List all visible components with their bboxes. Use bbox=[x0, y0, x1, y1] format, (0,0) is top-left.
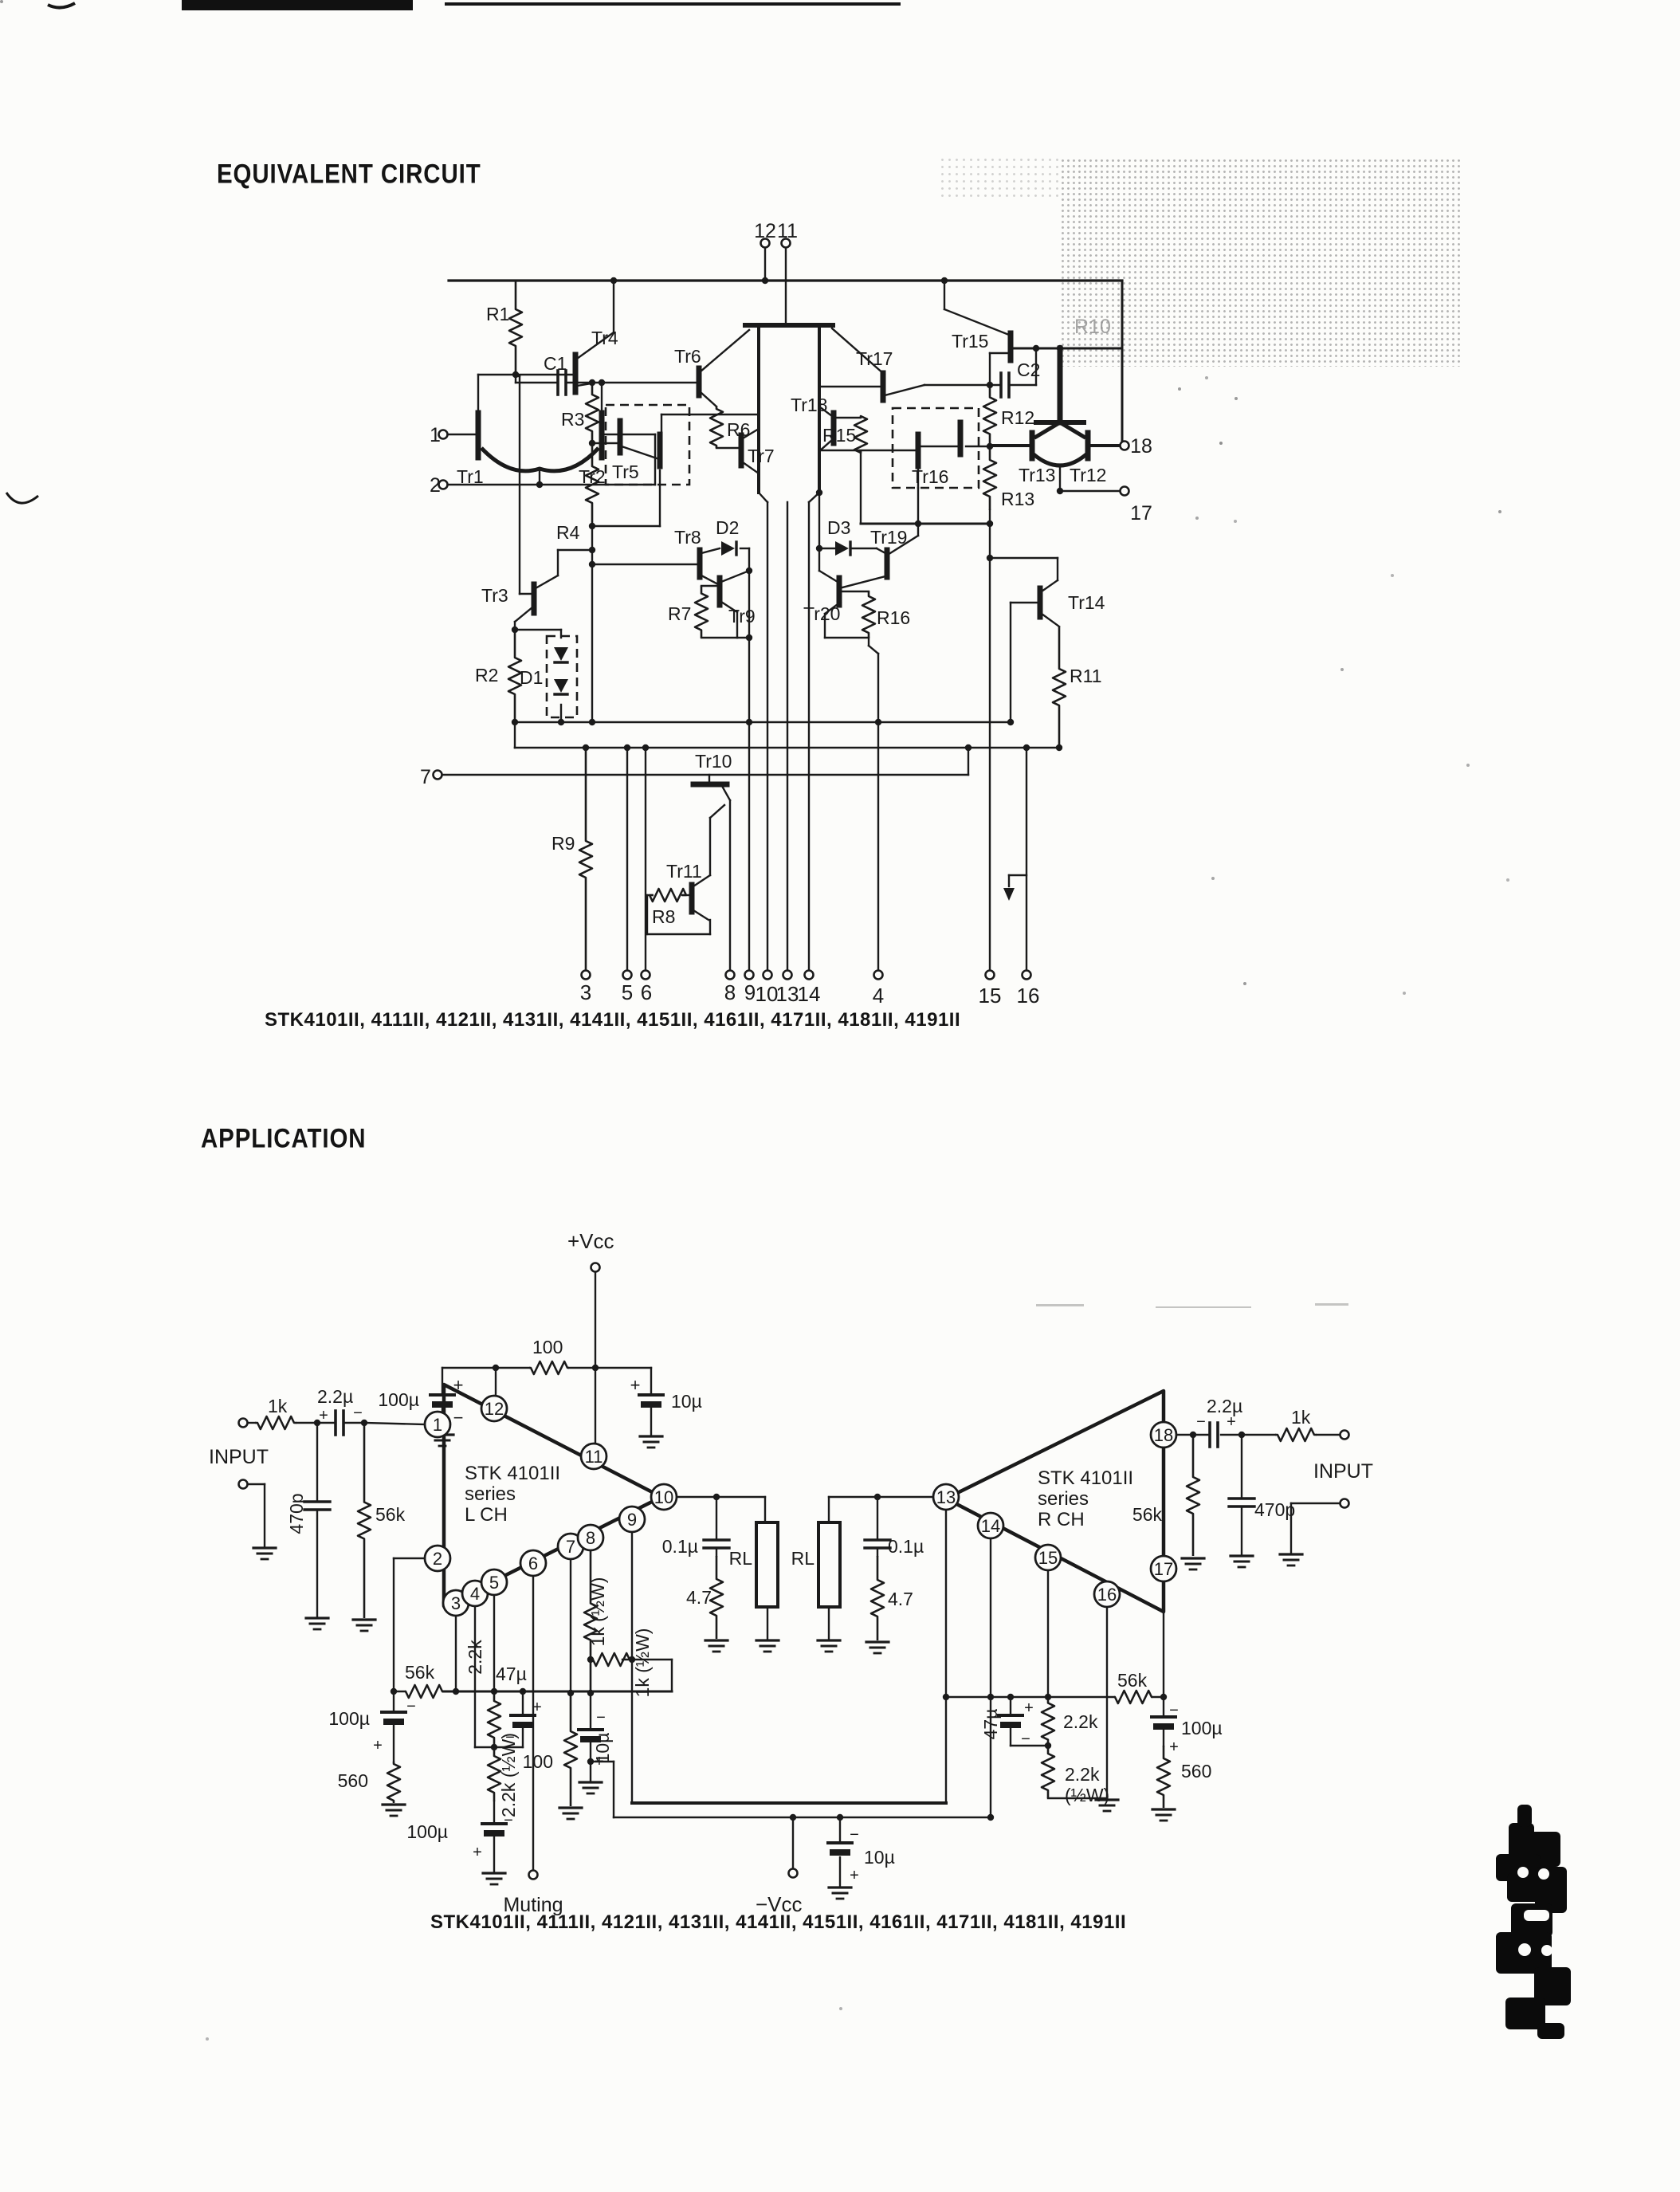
junction-dot bbox=[987, 382, 993, 388]
tr10-label: Tr10 bbox=[695, 751, 732, 772]
terminal bbox=[789, 1869, 798, 1878]
pin-number-4: 4 bbox=[470, 1584, 480, 1604]
tr7-label: Tr7 bbox=[748, 446, 775, 466]
junction-dot bbox=[1033, 345, 1039, 352]
c-470p-left-label: 470p bbox=[286, 1493, 307, 1534]
plus: + bbox=[630, 1375, 641, 1395]
tr15-label: Tr15 bbox=[952, 331, 988, 352]
junction-dot bbox=[1057, 345, 1063, 352]
junction-dot bbox=[987, 555, 993, 561]
tr20-label: Tr20 bbox=[803, 603, 840, 624]
minus: − bbox=[596, 1709, 606, 1726]
ink-stamp-hole bbox=[1538, 1868, 1549, 1880]
wire bbox=[885, 385, 924, 395]
junction-dot bbox=[1007, 719, 1014, 725]
minus: − bbox=[406, 1698, 416, 1715]
pin-number-8: 8 bbox=[586, 1528, 595, 1548]
resistor bbox=[358, 1423, 371, 1618]
wire bbox=[364, 1423, 425, 1424]
plus: + bbox=[850, 1867, 859, 1884]
amp-right-text: series bbox=[1038, 1488, 1089, 1510]
pin-number-11: 11 bbox=[585, 1447, 603, 1467]
junction-dot bbox=[512, 719, 518, 725]
pin-7-label: 7 bbox=[420, 766, 431, 788]
junction-dot bbox=[790, 1814, 796, 1821]
wire bbox=[842, 575, 889, 587]
amp-right-text: R CH bbox=[1038, 1509, 1085, 1530]
minus: − bbox=[353, 1404, 363, 1422]
input-right-label: INPUT bbox=[1313, 1460, 1373, 1483]
junction-dot bbox=[816, 545, 822, 552]
junction-dot bbox=[746, 568, 752, 574]
junction-dot bbox=[915, 521, 921, 527]
tr19-label: Tr19 bbox=[870, 527, 907, 548]
plus: + bbox=[319, 1407, 328, 1424]
r-560-left-label: 560 bbox=[338, 1770, 368, 1791]
junction-dot bbox=[589, 379, 595, 386]
amp-right-text: STK 4101II bbox=[1038, 1467, 1133, 1489]
ink-stamp-shape bbox=[1517, 1805, 1532, 1827]
r16-label: R16 bbox=[877, 607, 910, 628]
resistor bbox=[710, 1556, 723, 1639]
r8-label: R8 bbox=[652, 906, 675, 927]
junction-dot bbox=[987, 521, 993, 527]
minus: − bbox=[1021, 1730, 1030, 1748]
diode bbox=[554, 647, 568, 661]
schematic-canvas: 123456789101112131415161718 1211R1Tr4C1R… bbox=[0, 0, 1680, 2192]
terminal bbox=[434, 771, 442, 780]
r-22k-bl-label: 2.2k bbox=[465, 1640, 485, 1675]
rl-right-label: RL bbox=[791, 1548, 815, 1569]
pin-9-label: 9 bbox=[744, 980, 756, 1004]
pin-number-12: 12 bbox=[485, 1399, 504, 1419]
r15-label: R15 bbox=[822, 425, 856, 446]
terminal bbox=[239, 1480, 248, 1489]
pin-number-15: 15 bbox=[1038, 1548, 1058, 1568]
minus: − bbox=[504, 1812, 513, 1829]
r-100-bl-label: 100 bbox=[523, 1751, 553, 1772]
pin-17-label: 17 bbox=[1130, 502, 1152, 524]
junction-dot bbox=[589, 440, 595, 446]
arrow-mark bbox=[1003, 888, 1015, 901]
tr5-label: Tr5 bbox=[612, 462, 639, 482]
wire bbox=[759, 493, 767, 502]
junction-dot bbox=[512, 371, 519, 378]
junction-dot bbox=[816, 489, 822, 496]
scan-marks bbox=[6, 3, 75, 503]
junction-dot bbox=[491, 1688, 497, 1695]
pin-11-label: 11 bbox=[777, 220, 798, 242]
pin-6-label: 6 bbox=[641, 980, 652, 1004]
capacitor-plate bbox=[1000, 1722, 1021, 1728]
tr2-label: Tr2 bbox=[579, 466, 606, 487]
terminal bbox=[745, 971, 754, 980]
speaker-load bbox=[756, 1522, 778, 1607]
pin-number-14: 14 bbox=[981, 1516, 1000, 1536]
minus: − bbox=[1169, 1702, 1179, 1719]
junction-dot bbox=[987, 1694, 994, 1700]
pin-number-1: 1 bbox=[433, 1415, 442, 1435]
resistor bbox=[862, 591, 875, 638]
resistor bbox=[695, 586, 708, 638]
plus: + bbox=[473, 1844, 482, 1861]
c-100u-rout-label: 100µ bbox=[1181, 1718, 1223, 1738]
terminal bbox=[1023, 971, 1031, 980]
c-10u-mid-label: 10µ bbox=[864, 1847, 895, 1868]
resistor bbox=[405, 1685, 443, 1698]
pin-number-16: 16 bbox=[1097, 1585, 1117, 1605]
plus: + bbox=[595, 1753, 604, 1770]
r-100-top-label: 100 bbox=[532, 1337, 563, 1357]
junction-dot bbox=[520, 1688, 526, 1695]
tr14-label: Tr14 bbox=[1068, 592, 1105, 613]
plus: + bbox=[373, 1737, 383, 1754]
junction-dot bbox=[837, 1814, 843, 1821]
r-22k-halfw-br-label: 2.2k bbox=[1065, 1764, 1100, 1785]
junction-dot bbox=[875, 719, 881, 725]
resistor bbox=[1157, 1746, 1170, 1808]
ink-stamp-shape bbox=[1537, 2023, 1564, 2039]
junction-dot bbox=[624, 744, 630, 751]
ink-stamp-hole bbox=[1517, 1867, 1529, 1878]
pin-15-label: 15 bbox=[979, 984, 1002, 1008]
muting-label: Muting bbox=[503, 1894, 563, 1916]
c-10u-topright-label: 10µ bbox=[671, 1391, 702, 1412]
capacitor-plate bbox=[432, 1401, 453, 1408]
junction-dot bbox=[1160, 1694, 1167, 1700]
application-circuit-diagram: 123456789101112131415161718 bbox=[239, 1263, 1349, 1899]
r-47-right-label: 4.7 bbox=[888, 1589, 913, 1609]
tr13-label: Tr13 bbox=[1019, 465, 1055, 485]
junction-dot bbox=[587, 1656, 594, 1663]
capacitor-plate bbox=[641, 1401, 661, 1408]
junction-dot bbox=[943, 1694, 949, 1700]
junction-dot bbox=[558, 719, 564, 725]
junction-dot bbox=[536, 481, 543, 488]
r-56k-left-in-label: 56k bbox=[375, 1504, 406, 1525]
terminal bbox=[529, 1871, 538, 1880]
pin-12-label: 12 bbox=[754, 220, 776, 242]
terminal bbox=[591, 1263, 600, 1272]
vcc-pos-label: +Vcc bbox=[567, 1229, 614, 1253]
junction-dot bbox=[1238, 1432, 1245, 1438]
c2-label: C2 bbox=[1017, 359, 1040, 380]
junction-dot bbox=[965, 744, 971, 751]
amp-left-text: L CH bbox=[465, 1504, 508, 1526]
capacitor-plate bbox=[383, 1719, 404, 1725]
pin-number-5: 5 bbox=[489, 1573, 499, 1593]
pin-number-6: 6 bbox=[528, 1554, 538, 1573]
pin-number-7: 7 bbox=[566, 1537, 575, 1557]
resistor bbox=[710, 407, 723, 448]
pin-13-label: 13 bbox=[776, 982, 799, 1006]
wire bbox=[723, 788, 730, 800]
rl-left-label: RL bbox=[729, 1548, 753, 1569]
r-1k-halfw-b-label: 1k (½W) bbox=[632, 1628, 653, 1698]
pin-number-10: 10 bbox=[654, 1487, 673, 1507]
terminal bbox=[986, 971, 995, 980]
c-470p-right-label: 470p bbox=[1254, 1499, 1295, 1520]
junction-dot bbox=[762, 277, 768, 284]
terminal bbox=[783, 971, 792, 980]
r-56k-br-label: 56k bbox=[1117, 1670, 1148, 1691]
d2-label: D2 bbox=[716, 517, 739, 538]
pin-number-18: 18 bbox=[1154, 1425, 1173, 1445]
junction-dot bbox=[874, 1494, 881, 1500]
input-left-label: INPUT bbox=[209, 1446, 269, 1468]
wire bbox=[701, 575, 718, 584]
r9-label: R9 bbox=[551, 833, 575, 854]
plus: + bbox=[1227, 1413, 1236, 1431]
tr18-label: Tr18 bbox=[791, 395, 827, 415]
r-22k-halfw-bl-label: 2.2k (½W) bbox=[498, 1733, 519, 1817]
tr9-label: Tr9 bbox=[728, 606, 756, 627]
tr8-label: Tr8 bbox=[674, 527, 701, 548]
wire bbox=[877, 548, 885, 553]
d1-label: D1 bbox=[520, 667, 543, 688]
wire bbox=[721, 571, 749, 582]
r-56k-bl-label: 56k bbox=[405, 1662, 435, 1683]
ink-stamp-hole bbox=[1511, 1974, 1530, 1983]
diode bbox=[835, 541, 849, 556]
junction-dot bbox=[491, 1744, 497, 1750]
terminal bbox=[642, 971, 650, 980]
c-01u-left-label: 0.1µ bbox=[662, 1536, 698, 1557]
capacitor-plate bbox=[512, 1722, 533, 1728]
junction-dot bbox=[589, 561, 595, 568]
r7-label: R7 bbox=[668, 603, 691, 624]
wire bbox=[710, 805, 724, 818]
pin-3-label: 3 bbox=[580, 980, 591, 1004]
resistor bbox=[586, 383, 599, 443]
pin-14-label: 14 bbox=[798, 982, 821, 1006]
r11-label: R11 bbox=[1070, 666, 1102, 686]
tr1-label: Tr1 bbox=[457, 466, 484, 487]
pin-10-label: 10 bbox=[756, 982, 779, 1006]
c-47u-bl-label: 47µ bbox=[496, 1664, 527, 1684]
junction-dot bbox=[713, 1494, 720, 1500]
junction-dot bbox=[1056, 744, 1062, 751]
r4-label: R4 bbox=[556, 522, 580, 543]
terminal bbox=[874, 971, 883, 980]
r3-label: R3 bbox=[561, 409, 584, 430]
junction-dot bbox=[1045, 1694, 1051, 1700]
pin-4-label: 4 bbox=[873, 984, 884, 1008]
capacitor-plate bbox=[1153, 1723, 1174, 1730]
junction-dot bbox=[583, 744, 589, 751]
wire bbox=[819, 571, 838, 582]
junction-dot bbox=[512, 627, 518, 633]
r-22k-halfw-br-label2: (½W) bbox=[1065, 1785, 1109, 1805]
resistor bbox=[650, 889, 686, 902]
resistor bbox=[387, 1762, 400, 1803]
r-560-right-label: 560 bbox=[1181, 1761, 1211, 1781]
terminal bbox=[726, 971, 735, 980]
junction-dot bbox=[592, 1365, 599, 1371]
vcc-neg-label: −Vcc bbox=[756, 1892, 803, 1916]
plus: + bbox=[1024, 1699, 1034, 1717]
junction-dot bbox=[746, 719, 752, 725]
speaker-load bbox=[818, 1522, 840, 1607]
resistor bbox=[1275, 1428, 1317, 1441]
tr11-label: Tr11 bbox=[666, 861, 702, 882]
equivalent-circuit-diagram bbox=[434, 239, 1129, 980]
junction-dot bbox=[1023, 744, 1030, 751]
c-22u-right-label: 2.2µ bbox=[1207, 1396, 1242, 1416]
ink-stamp-hole bbox=[1518, 1943, 1531, 1956]
tr16-label: Tr16 bbox=[912, 466, 948, 487]
plus: + bbox=[532, 1699, 542, 1716]
wire bbox=[693, 910, 709, 920]
junction-dot bbox=[1045, 1742, 1051, 1749]
ink-stamp-hole bbox=[1524, 1910, 1549, 1921]
wire bbox=[701, 392, 716, 407]
junction-dot bbox=[941, 277, 948, 284]
pin-2-label: 2 bbox=[430, 474, 441, 497]
resistor bbox=[983, 446, 996, 510]
minus: − bbox=[850, 1826, 859, 1844]
pin-18-label: 18 bbox=[1130, 435, 1152, 458]
r-1k-right-label: 1k bbox=[1291, 1407, 1311, 1428]
terminal bbox=[1340, 1431, 1349, 1440]
wire bbox=[1042, 614, 1059, 627]
ink-stamp-logo bbox=[1496, 1805, 1571, 2039]
tr6-label: Tr6 bbox=[674, 346, 701, 367]
r-56k-right-in-label: 56k bbox=[1132, 1504, 1163, 1525]
c-100u-topleft-label: 100µ bbox=[378, 1389, 419, 1410]
resistor bbox=[509, 281, 522, 375]
r-1k-left-label: 1k bbox=[268, 1396, 288, 1416]
junction-dot bbox=[599, 379, 605, 386]
junction-dot bbox=[642, 744, 649, 751]
r2-label: R2 bbox=[475, 665, 498, 685]
r1-label: R1 bbox=[486, 304, 509, 324]
amp-left-text: series bbox=[465, 1483, 516, 1505]
wire bbox=[869, 646, 878, 654]
r13-label: R13 bbox=[1001, 489, 1034, 509]
resistor bbox=[854, 416, 867, 453]
minus: − bbox=[453, 1408, 464, 1428]
terminal bbox=[1121, 442, 1129, 450]
resistor bbox=[579, 748, 592, 971]
resistor bbox=[871, 1556, 884, 1640]
pin-16-label: 16 bbox=[1017, 984, 1040, 1008]
c-47u-br-label: 47µ bbox=[980, 1709, 1001, 1740]
resistor bbox=[1053, 627, 1066, 748]
minus: − bbox=[1196, 1413, 1206, 1431]
diode bbox=[721, 541, 735, 556]
junction-dot bbox=[567, 1690, 574, 1696]
d3-label: D3 bbox=[827, 517, 850, 538]
resistor bbox=[983, 385, 996, 446]
terminal bbox=[1340, 1499, 1349, 1508]
plus: + bbox=[1169, 1738, 1179, 1756]
terminal bbox=[623, 971, 632, 980]
capacitor-plate bbox=[484, 1830, 504, 1836]
amp-left-text: STK 4101II bbox=[465, 1463, 560, 1484]
diode bbox=[554, 679, 568, 693]
wire bbox=[701, 548, 720, 553]
c-01u-right-label: 0.1µ bbox=[888, 1536, 924, 1557]
c-100u-lout-label: 100µ bbox=[328, 1708, 370, 1729]
tr17-label: Tr17 bbox=[856, 348, 893, 369]
c1-label: C1 bbox=[544, 353, 567, 374]
resistor bbox=[255, 1416, 296, 1429]
r-1k-halfw-a-label: 1k (½W) bbox=[587, 1577, 608, 1647]
junction-dot bbox=[587, 1690, 594, 1696]
wire bbox=[701, 330, 749, 371]
terminal bbox=[239, 1419, 248, 1428]
junction-dot bbox=[987, 443, 993, 450]
wire bbox=[536, 575, 558, 588]
tr4-label: Tr4 bbox=[591, 328, 618, 348]
terminal bbox=[1121, 487, 1129, 496]
junction-dot bbox=[987, 1814, 994, 1821]
r12-label: R12 bbox=[1001, 407, 1034, 428]
terminal bbox=[805, 971, 814, 980]
pin-number-13: 13 bbox=[936, 1487, 956, 1507]
pin-number-9: 9 bbox=[627, 1510, 637, 1530]
r-22k-br-label: 2.2k bbox=[1063, 1711, 1098, 1732]
junction-dot bbox=[589, 719, 595, 725]
junction-dot bbox=[453, 1688, 459, 1695]
c-100u-lin-label: 100µ bbox=[406, 1821, 448, 1842]
tr12-label: Tr12 bbox=[1070, 465, 1106, 485]
junction-dot bbox=[1057, 488, 1063, 494]
emitter-arc bbox=[1034, 454, 1086, 466]
wire bbox=[515, 607, 532, 622]
terminal bbox=[582, 971, 591, 980]
junction-dot bbox=[610, 277, 617, 284]
junction-dot bbox=[589, 547, 595, 553]
resistor bbox=[564, 1693, 577, 1806]
resistor bbox=[1042, 1746, 1054, 1798]
pin-number-3: 3 bbox=[451, 1593, 461, 1613]
pin-5-label: 5 bbox=[622, 980, 633, 1004]
tr3-label: Tr3 bbox=[481, 585, 508, 606]
r-47-left-label: 4.7 bbox=[686, 1587, 712, 1608]
junction-dot bbox=[1190, 1432, 1196, 1438]
pin-number-2: 2 bbox=[433, 1549, 442, 1569]
capacitor-plate bbox=[830, 1849, 850, 1856]
wire bbox=[1042, 580, 1058, 591]
junction-dot bbox=[589, 523, 595, 529]
datasheet-page: EQUIVALENT CIRCUIT APPLICATION STK4101II… bbox=[0, 0, 1680, 2192]
junction-dot bbox=[746, 634, 752, 641]
wire bbox=[622, 446, 657, 458]
pin-number-17: 17 bbox=[1154, 1559, 1173, 1579]
pin-1-label: 1 bbox=[430, 424, 441, 446]
application-circuit-labels: STK 4101IIseriesL CHSTK 4101IIseriesR CH… bbox=[209, 1229, 1373, 1916]
junction-dot bbox=[493, 1365, 499, 1371]
r6-label: R6 bbox=[727, 419, 750, 440]
junction-dot bbox=[1007, 1694, 1014, 1700]
resistor bbox=[1114, 1691, 1152, 1703]
c-22u-left-label: 2.2µ bbox=[317, 1386, 353, 1407]
junction-dot bbox=[391, 1688, 397, 1695]
plus: + bbox=[453, 1375, 464, 1395]
pin-8-label: 8 bbox=[724, 980, 736, 1004]
terminal bbox=[763, 971, 772, 980]
ink-stamp-hole bbox=[1541, 1945, 1552, 1956]
resistor bbox=[1042, 1697, 1054, 1746]
resistor bbox=[529, 1361, 569, 1374]
resistor bbox=[1187, 1435, 1199, 1556]
